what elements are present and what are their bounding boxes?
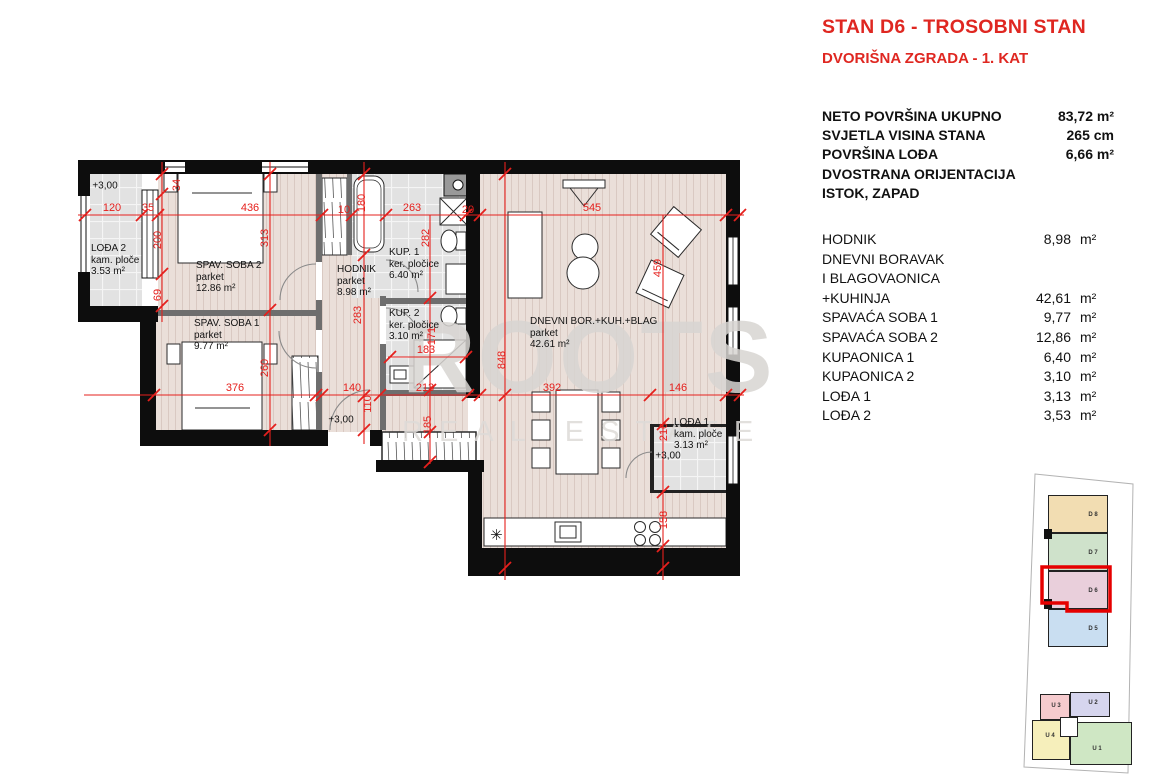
room-area-row: DNEVNI BORAVAK <box>822 250 1114 270</box>
dimension-label: 110 <box>362 395 374 413</box>
dimension-label: 140 <box>343 382 361 394</box>
site-unit-u2: U 2 <box>1070 692 1110 717</box>
dimension-label: 848 <box>496 351 508 369</box>
summary-row: DVOSTRANA ORIJENTACIJA <box>822 165 1114 184</box>
room-label: SPAV. SOBA 1parket9.77 m² <box>194 318 259 353</box>
dimension-label: 545 <box>583 202 601 214</box>
site-unit-u1: U 1 <box>1070 722 1132 765</box>
level-marker: +3,00 <box>92 181 117 192</box>
room-area-row: KUPAONICA 23,10m² <box>822 367 1114 387</box>
dimension-label: 213 <box>416 382 434 394</box>
floor-plan-page: ✳ <box>0 0 1162 780</box>
dimension-label: 376 <box>226 382 244 394</box>
summary-row: POVRŠINA LOĐA 6,66 m² <box>822 145 1114 164</box>
level-marker: +3,00 <box>655 451 680 462</box>
dimension-label: 10 <box>338 204 350 216</box>
room-label: LOĐA 2kam. ploče3.53 m² <box>91 243 139 278</box>
room-label: KUP. 1ker. pločice6.40 m² <box>389 247 439 282</box>
stairwell-core <box>1060 717 1078 737</box>
room-area-row: HODNIK8,98m² <box>822 230 1114 250</box>
page-title: STAN D6 - TROSOBNI STAN <box>822 16 1114 39</box>
level-marker: +3,00 <box>328 415 353 426</box>
dimension-label: 69 <box>152 289 164 301</box>
stairwell-mark <box>1044 599 1052 609</box>
dimension-label: 200 <box>152 231 164 249</box>
summary-row: NETO POVRŠINA UKUPNO 83,72 m² <box>822 107 1114 126</box>
dimension-label: 313 <box>259 229 271 247</box>
dimension-label: 120 <box>103 202 121 214</box>
stairwell-mark <box>1044 529 1052 539</box>
site-map: D 8 D 7 D 6 D 5 U 3 U 2 U 4 U 1 <box>1020 470 1162 780</box>
site-unit-d8: D 8 <box>1048 495 1108 533</box>
dimension-label: 35 <box>142 202 154 214</box>
summary-row: SVJETLA VISINA STANA 265 cm <box>822 126 1114 145</box>
dimension-label: 185 <box>422 416 434 434</box>
dimension-label: 216 <box>658 423 670 441</box>
dimension-label: 282 <box>420 229 432 247</box>
room-area-row: LOĐA 23,53m² <box>822 406 1114 426</box>
dimension-label: 183 <box>417 344 435 356</box>
dimension-label: 34 <box>171 179 183 191</box>
summary-row: ISTOK, ZAPAD <box>822 184 1114 203</box>
room-label: HODNIKparket8.98 m² <box>337 264 376 299</box>
dimension-label: 263 <box>403 202 421 214</box>
site-unit-d5: D 5 <box>1048 609 1108 647</box>
page-subtitle: DVORIŠNA ZGRADA - 1. KAT <box>822 50 1114 67</box>
room-area-row: +KUHINJA42,61m² <box>822 289 1114 309</box>
room-label: LOĐA 1kam. ploče3.13 m² <box>674 417 722 452</box>
room-area-row: SPAVAĆA SOBA 19,77m² <box>822 308 1114 328</box>
dimension-label: 180 <box>356 194 368 212</box>
summary-table: NETO POVRŠINA UKUPNO 83,72 m² SVJETLA VI… <box>822 107 1114 203</box>
room-area-row: KUPAONICA 16,40m² <box>822 348 1114 368</box>
dimension-label: 436 <box>241 202 259 214</box>
dimension-label: 146 <box>669 382 687 394</box>
dimension-label: 392 <box>543 382 561 394</box>
room-label: SPAV. SOBA 2parket12.86 m² <box>196 260 261 295</box>
dimension-label: 283 <box>352 306 364 324</box>
dimension-ticks <box>79 168 746 574</box>
site-unit-d6: D 6 <box>1048 571 1108 609</box>
info-panel: STAN D6 - TROSOBNI STAN DVORIŠNA ZGRADA … <box>822 16 1114 426</box>
room-area-row: SPAVAĆA SOBA 212,86m² <box>822 328 1114 348</box>
room-area-row: LOĐA 13,13m² <box>822 387 1114 407</box>
dimension-label: 158 <box>658 511 670 529</box>
room-area-row: I BLAGOVAONICA <box>822 269 1114 289</box>
site-unit-d7: D 7 <box>1048 533 1108 571</box>
room-label: DNEVNI BOR.+KUH.+BLAGparket42.61 m² <box>530 316 657 351</box>
dimension-label: 459 <box>652 259 664 277</box>
dimension-label: 20 <box>462 204 474 216</box>
room-label: KUP. 2ker. pločice3.10 m² <box>389 308 439 343</box>
room-areas-table: HODNIK8,98m² DNEVNI BORAVAK I BLAGOVAONI… <box>822 230 1114 426</box>
dimension-label: 260 <box>259 359 271 377</box>
